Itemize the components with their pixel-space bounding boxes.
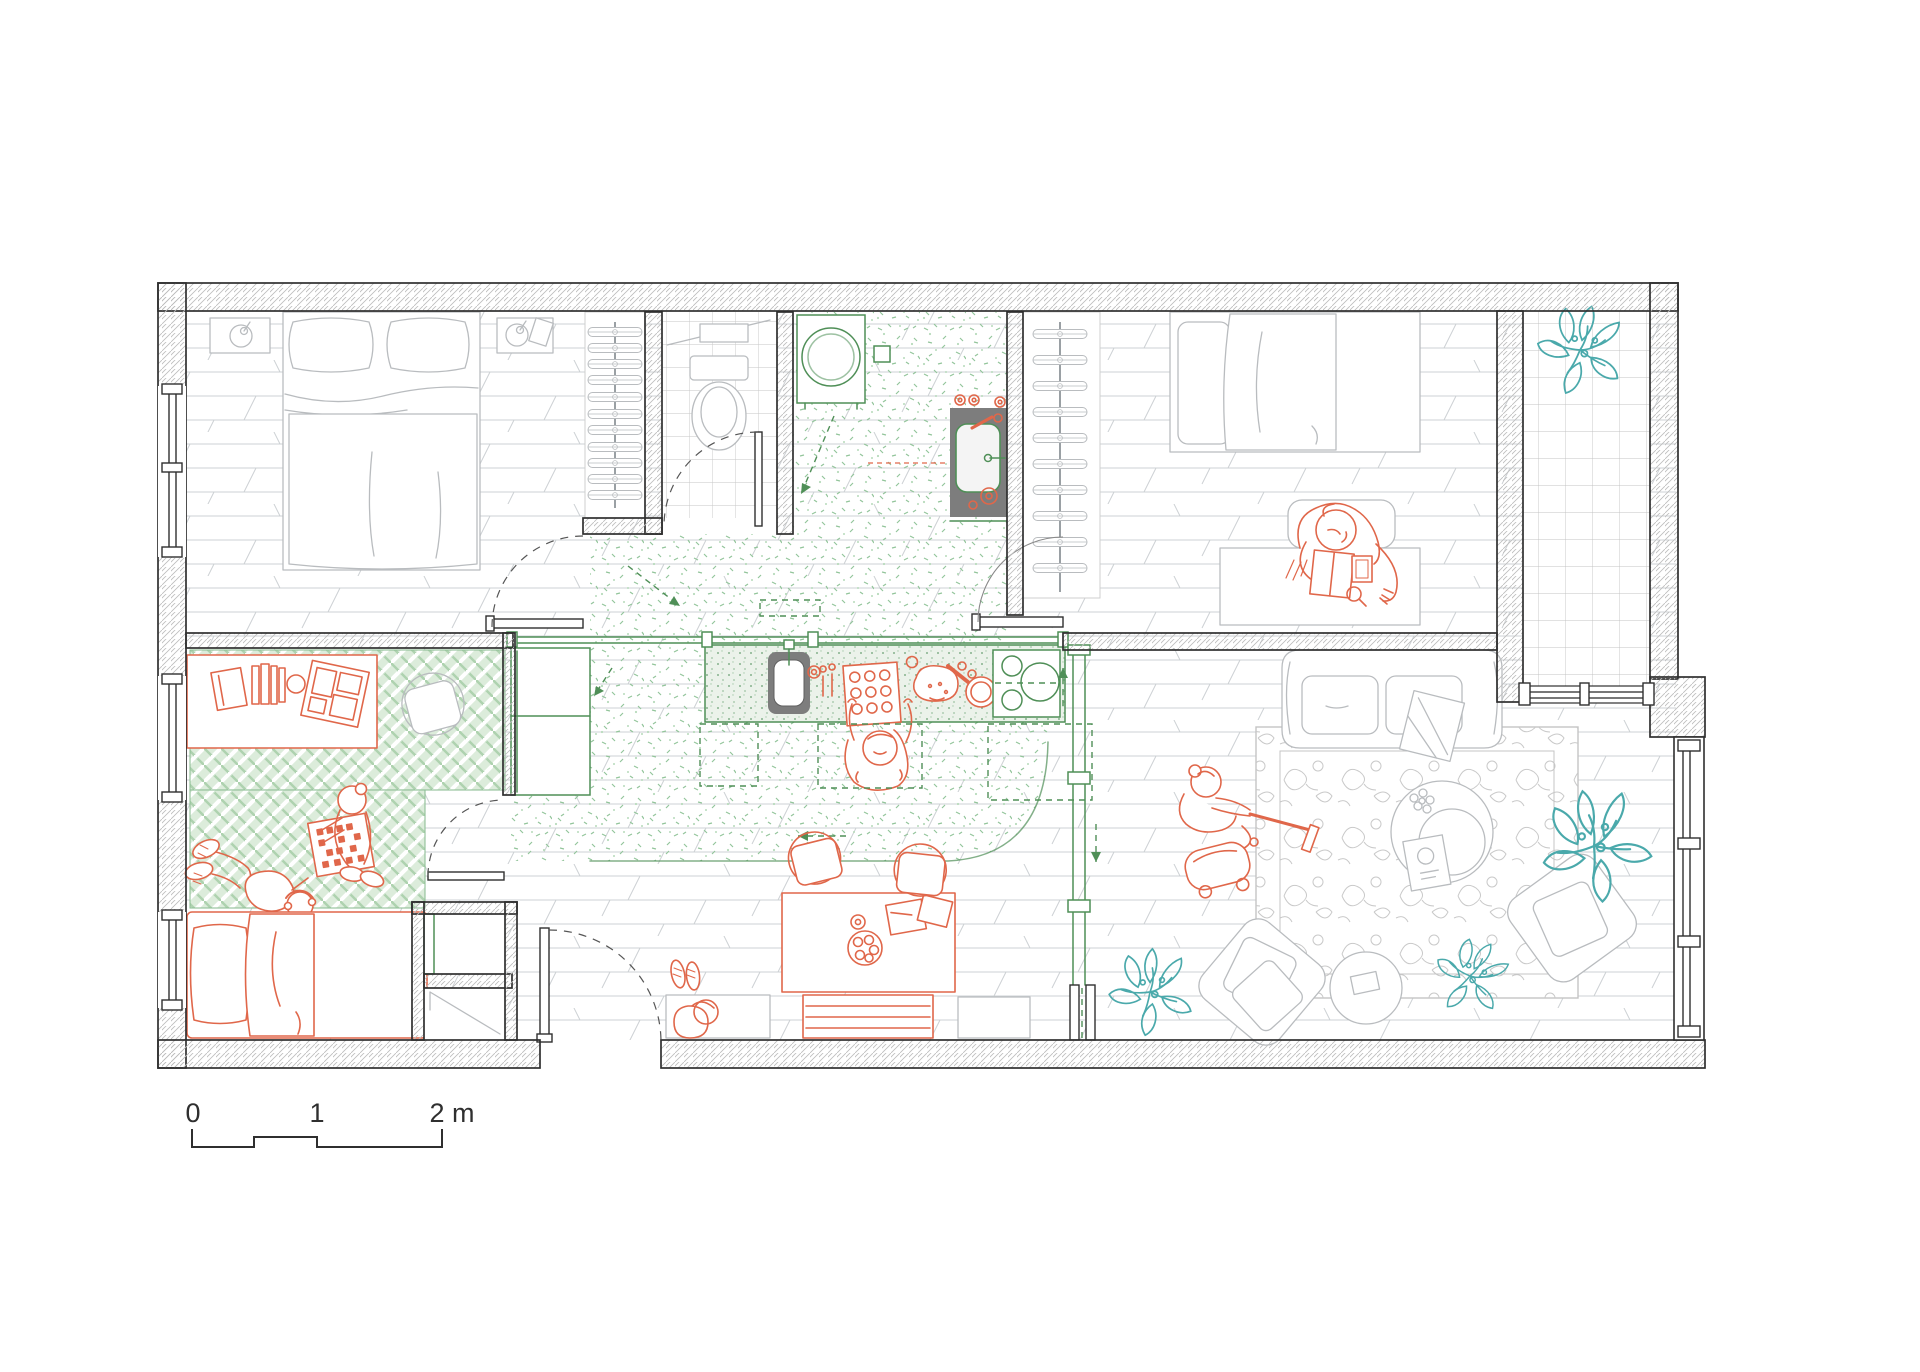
- wall-bathroom-left: [645, 312, 662, 534]
- scale-bar-steps: [192, 1129, 442, 1147]
- scale-label-1: 1: [309, 1098, 324, 1128]
- wall-top: [158, 283, 1678, 311]
- sofa: [1282, 650, 1502, 761]
- floor-plan-page: 0 1 2 m: [0, 0, 1920, 1372]
- game-board: [308, 813, 374, 876]
- pillow: [191, 925, 250, 1024]
- washing-machine: [797, 315, 865, 409]
- wall-kids-room: [186, 633, 513, 648]
- nightstand-left: [210, 318, 270, 353]
- wall-corner-block: [1650, 677, 1705, 737]
- wall-bottom-right: [661, 1040, 1705, 1068]
- wall-storage-stub: [503, 633, 515, 795]
- kids-desk: [187, 655, 377, 748]
- side-bench: [958, 997, 1030, 1038]
- balcony-sliding-door: [1519, 683, 1654, 705]
- wall-niche-left: [412, 902, 424, 1040]
- floor-plan-canvas: 0 1 2 m: [0, 0, 1920, 1372]
- walk-in-closet-hangers: [588, 322, 642, 508]
- wall-niche-top: [412, 902, 517, 914]
- pouf-side-table: [1330, 952, 1402, 1024]
- window-master-bedroom: [158, 384, 186, 557]
- scale-label-0: 0: [185, 1098, 200, 1128]
- single-bed: [1170, 312, 1420, 452]
- balcony-tile-floor: [1523, 311, 1650, 686]
- duvet: [1224, 314, 1336, 450]
- wall-niche-divider: [424, 974, 512, 988]
- scale-label-2m: 2 m: [429, 1098, 474, 1128]
- hall-storage: [511, 648, 590, 795]
- laundry-basket: [874, 346, 890, 362]
- wall-niche-right: [505, 902, 517, 1040]
- toilet-fixture: [690, 356, 748, 450]
- wall-closet-bottom: [583, 518, 662, 534]
- pillow: [387, 318, 469, 372]
- double-bed: [283, 312, 480, 570]
- window-kids-room: [158, 910, 186, 1010]
- wardrobe2-floor: [1023, 312, 1100, 598]
- wall-balcony-right: [1650, 283, 1678, 679]
- cooktop: [993, 650, 1060, 717]
- wall-bathroom-right: [777, 312, 793, 534]
- dining-bench: [803, 995, 933, 1038]
- window-master-bedroom-2: [158, 674, 186, 802]
- window-living-room: [1674, 737, 1704, 1040]
- wall-balcony-left: [1497, 311, 1523, 702]
- kids-bed: [187, 912, 427, 1038]
- nightstand-right: [497, 318, 553, 353]
- scale-bar: 0 1 2 m: [185, 1098, 474, 1147]
- wall-bedroom2-bottom: [1063, 633, 1497, 650]
- laundry-sink-counter: [950, 395, 1007, 521]
- magazine: [1403, 835, 1451, 891]
- pillow: [289, 318, 373, 372]
- wall-laundry-right: [1007, 312, 1023, 615]
- pillow: [1178, 322, 1230, 444]
- wall-bottom-left: [158, 1040, 540, 1068]
- baking-tray: [843, 662, 901, 726]
- shelf-item: [700, 324, 748, 342]
